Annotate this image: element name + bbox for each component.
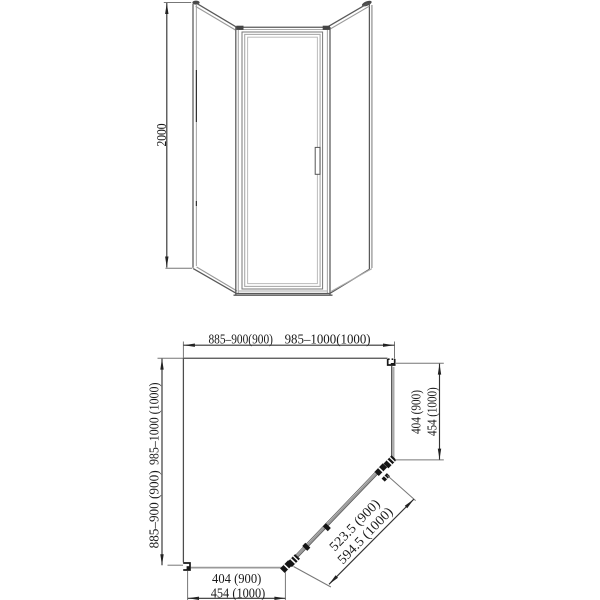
svg-text:404 (900): 404 (900) (212, 571, 261, 586)
svg-text:2000: 2000 (155, 124, 170, 147)
svg-text:885–900(900): 885–900(900) (208, 332, 273, 347)
svg-text:985–1000(1000): 985–1000(1000) (285, 332, 371, 347)
svg-text:454 (1000): 454 (1000) (424, 387, 439, 436)
svg-text:985–1000 (1000): 985–1000 (1000) (146, 383, 161, 466)
svg-text:454 (1000): 454 (1000) (211, 585, 266, 600)
svg-text:885–900 (900): 885–900 (900) (146, 470, 161, 548)
svg-text:404 (900): 404 (900) (408, 390, 423, 434)
